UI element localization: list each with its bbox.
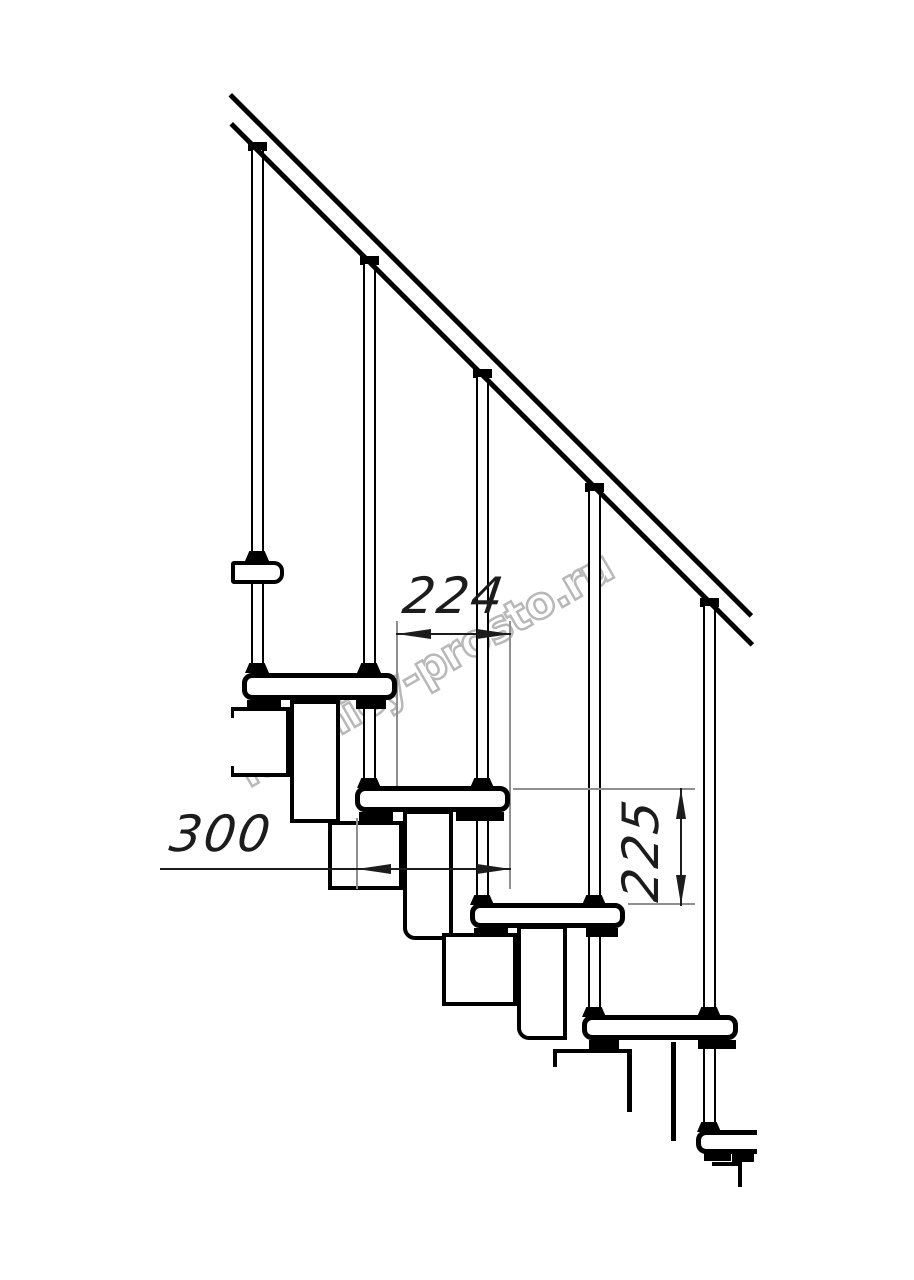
baluster-2-upper [363,264,376,663]
tread-pad [456,812,504,821]
baluster-3-lower [476,810,489,895]
module-box-4-right-line [627,1049,632,1112]
dim-going-label: 224 [394,568,514,624]
tread-pad [247,700,281,709]
baluster-2-lower-foot [357,778,381,788]
baluster-1-upper [251,150,264,551]
module-box-1-left-tick [231,766,234,777]
dim-rise-label: 225 [611,781,671,919]
dim-depth-arrow-left [357,864,391,874]
dim-going-arrow-right [477,629,511,639]
module-box-2 [328,821,403,890]
base-contour-line [738,1162,742,1187]
tread-pad [732,1150,754,1162]
baluster-4-upper-foot [582,895,606,905]
handrail-bracket [231,561,284,584]
module-tube-1 [290,700,340,823]
module-box-1-left-tick [231,707,234,718]
baluster-2-lower [363,702,376,778]
extension-line-going-left [396,621,398,789]
tread-4 [582,1015,738,1040]
module-box-3 [442,933,517,1006]
module-tube-3 [517,925,567,1040]
module-box-1 [233,707,290,777]
handrail-upper-line [228,93,753,618]
dim-rise-arrow-up [676,789,686,819]
module-tube-2 [403,810,453,940]
baluster-5-upper [703,606,716,1007]
staircase-drawing: lestnicy-prosto.ru 224 300 225 [0,0,914,1280]
dim-depth-label: 300 [161,806,281,862]
tread-pad [356,700,386,709]
tread-pad [589,1040,619,1049]
extension-line-depth-left [356,818,358,889]
tread-pad [704,1152,731,1161]
baluster-4-lower-foot [582,1007,606,1017]
tread-2 [355,786,510,812]
baluster-5-lower-foot [697,1122,721,1132]
baluster-4-lower [588,926,601,1007]
baluster-3-lower-foot [470,895,494,905]
baluster-5-lower [703,1040,716,1122]
tread-pad [586,928,618,937]
baluster-3-upper-foot [470,778,494,788]
baluster-1-lower [251,584,264,664]
tread-1 [242,673,397,700]
extension-line-shared-right [509,621,511,889]
dim-depth-arrow-right [477,864,511,874]
dim-going-arrow-left [397,629,431,639]
baluster-4-upper [588,491,601,895]
dim-depth-line [160,868,511,870]
module-box-4-left-line [553,1049,557,1067]
tread-pad [359,812,393,821]
dim-rise-arrow-down [676,875,686,905]
tread-pad [698,1040,736,1049]
baluster-5-upper-foot [697,1007,721,1017]
baluster-1-lower-foot [245,663,269,673]
module-box-4-top-line [553,1049,631,1053]
baluster-1-upper-foot [245,551,269,561]
tread-pad [474,928,508,937]
module-tube-4-right-line [671,1042,676,1141]
tread-3 [470,903,625,928]
